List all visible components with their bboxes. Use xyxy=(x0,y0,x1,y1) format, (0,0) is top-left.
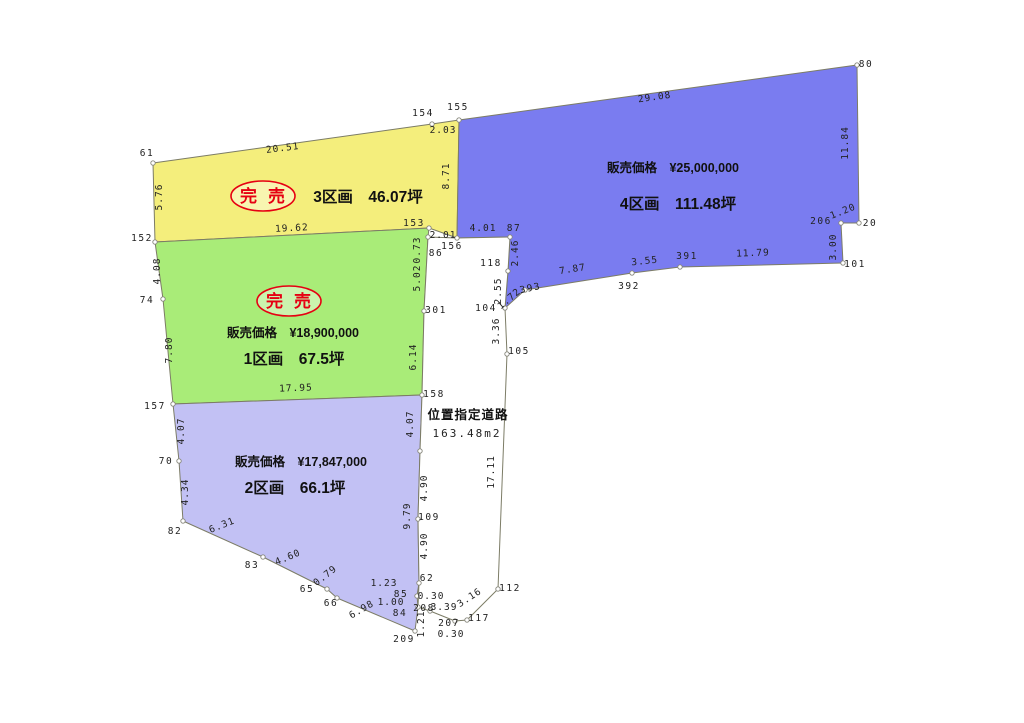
measurement-label: 4.08 xyxy=(152,258,163,285)
measurement-label: 0.73 xyxy=(412,237,423,264)
parcel-lot-2 xyxy=(173,395,422,631)
parcel-title: 1区画 67.5坪 xyxy=(244,350,345,368)
parcel-title: 2区画 66.1坪 xyxy=(245,479,346,497)
point-number-label: 152 xyxy=(131,233,153,244)
measurement-label: 4.90 xyxy=(419,475,430,502)
measurement-label: 4.34 xyxy=(180,479,191,506)
point-number-label: 155 xyxy=(447,102,469,113)
measurement-label: 17.11 xyxy=(486,455,497,489)
point-number-label: 118 xyxy=(480,258,502,269)
vertex-marker xyxy=(508,235,512,239)
point-number-label: 70 xyxy=(159,456,173,467)
vertex-marker xyxy=(678,265,682,269)
point-number-label: 101 xyxy=(844,259,866,270)
road-name-label: 位置指定道路 xyxy=(427,407,508,422)
measurement-label: 3.36 xyxy=(491,318,502,345)
measurement-label: 1.21 xyxy=(416,611,427,638)
measurement-label: 17.95 xyxy=(279,382,313,394)
point-number-label: 62 xyxy=(420,573,434,584)
point-number-label: 207 xyxy=(438,618,460,629)
vertex-marker xyxy=(181,519,185,523)
point-number-label: 65 xyxy=(300,584,314,595)
measurement-label: 8.71 xyxy=(441,163,452,190)
lot-2-shape xyxy=(173,395,422,631)
road-area-label: 163.48m2 xyxy=(433,427,502,440)
vertex-marker xyxy=(457,118,461,122)
point-number-label: 83 xyxy=(245,560,259,571)
point-number-label: 153 xyxy=(403,218,425,229)
point-number-label: 112 xyxy=(499,583,521,594)
measurement-label: 2.01 xyxy=(430,230,457,241)
sold-stamp-text: 完売 xyxy=(266,291,322,311)
measurement-label: 4.07 xyxy=(405,411,416,438)
sold-stamp-text: 完売 xyxy=(240,186,296,206)
price-label: 販売価格 ¥25,000,000 xyxy=(607,160,739,175)
measurement-label: 9.79 xyxy=(402,503,413,530)
measurement-label: 4.07 xyxy=(176,418,187,445)
point-number-label: 117 xyxy=(468,613,490,624)
measurement-label: 11.84 xyxy=(840,126,851,160)
point-number-label: 206 xyxy=(810,216,832,227)
vertex-marker xyxy=(151,161,155,165)
measurement-label: 6.14 xyxy=(408,344,419,371)
point-number-label: 104 xyxy=(475,303,497,314)
measurement-label: 0.30 xyxy=(438,629,465,640)
point-number-label: 209 xyxy=(393,634,415,645)
point-number-label: 105 xyxy=(508,346,530,357)
point-number-label: 156 xyxy=(441,241,463,252)
point-number-label: 80 xyxy=(859,59,873,70)
vertex-marker xyxy=(171,402,175,406)
vertex-marker xyxy=(177,459,181,463)
point-number-label: 109 xyxy=(418,512,440,523)
vertex-marker xyxy=(325,587,329,591)
measurement-label: 19.62 xyxy=(275,222,309,235)
point-number-label: 74 xyxy=(140,295,154,306)
measurement-label: 5.02 xyxy=(412,265,423,292)
measurement-label: 2.03 xyxy=(430,125,457,136)
point-number-label: 154 xyxy=(412,108,434,119)
point-number-label: 20 xyxy=(863,218,877,229)
vertex-marker xyxy=(857,221,861,225)
land-plot-map-page: 位置指定道路163.48m2 6120.511542.031555.768.71… xyxy=(0,0,1024,723)
parcel-title: 4区画 111.48坪 xyxy=(620,195,737,213)
point-number-label: 84 xyxy=(393,608,407,619)
measurement-label: 4.90 xyxy=(419,533,430,560)
price-label: 販売価格 ¥17,847,000 xyxy=(235,454,367,469)
vertex-marker xyxy=(630,271,634,275)
measurement-label: 2.46 xyxy=(510,240,521,267)
point-number-label: 391 xyxy=(676,251,698,262)
point-number-label: 157 xyxy=(144,401,166,412)
measurement-label: 7.80 xyxy=(164,337,175,364)
vertex-marker xyxy=(418,449,422,453)
point-number-label: 82 xyxy=(168,526,182,537)
price-label: 販売価格 ¥18,900,000 xyxy=(227,325,359,340)
measurement-label: 0.30 xyxy=(418,591,445,602)
vertex-marker xyxy=(161,297,165,301)
point-number-label: 61 xyxy=(140,148,154,159)
point-number-label: 85 xyxy=(394,589,408,600)
measurement-label: 1.23 xyxy=(371,578,398,589)
vertex-marker xyxy=(261,555,265,559)
point-number-label: 87 xyxy=(507,223,521,234)
point-number-label: 392 xyxy=(618,281,640,292)
measurement-label: 5.76 xyxy=(154,184,165,211)
measurement-label: 2.55 xyxy=(493,278,504,305)
point-number-label: 301 xyxy=(425,305,447,316)
point-number-label: 66 xyxy=(324,598,338,609)
point-number-label: 158 xyxy=(423,389,445,400)
land-plot-map: 位置指定道路163.48m2 6120.511542.031555.768.71… xyxy=(0,0,1024,723)
vertex-marker xyxy=(506,269,510,273)
measurement-label: 4.01 xyxy=(470,223,497,234)
measurement-label: 11.79 xyxy=(736,247,770,259)
parcel-title: 3区画 46.07坪 xyxy=(313,188,423,206)
measurement-label: 3.00 xyxy=(828,234,839,261)
point-number-label: 208 xyxy=(413,603,435,614)
vertex-marker xyxy=(839,221,843,225)
vertex-marker xyxy=(153,240,157,244)
